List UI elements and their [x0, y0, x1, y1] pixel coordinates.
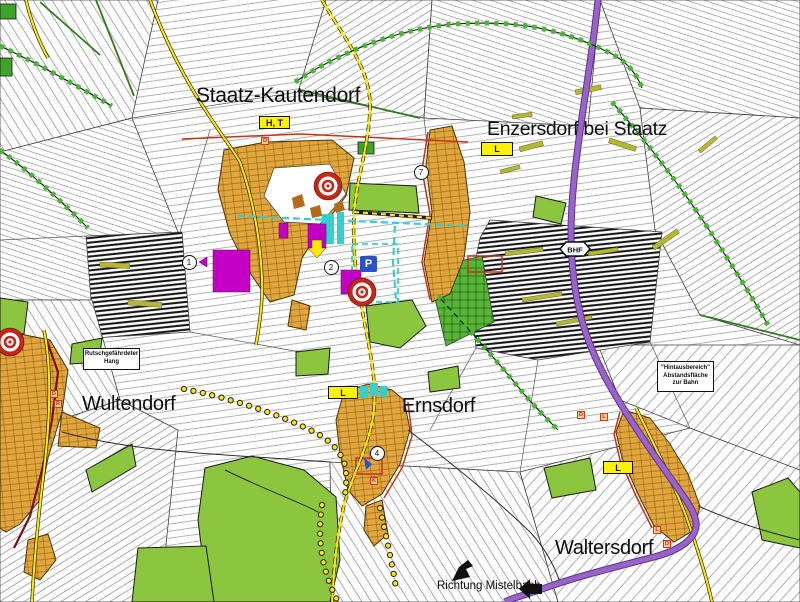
letter-marker: L	[600, 413, 608, 421]
annotation-landslide-line1: Rutschgefährdeter	[85, 351, 138, 359]
annotation-landslide: Rutschgefährdeter Hang	[83, 348, 140, 370]
map-canvas: BHF	[0, 0, 800, 602]
annotation-rail-buffer-line1: "Hintausbereich"	[661, 365, 710, 373]
annotation-rail-buffer-line3: zur Bahn	[673, 380, 699, 388]
place-label-staatz: Staatz-Kautendorf	[196, 84, 360, 108]
direction-note: Richtung Mistelbach	[437, 580, 541, 592]
annotation-landslide-line2: Hang	[104, 359, 119, 367]
zone-marker-l-ernsdorf: L	[328, 386, 358, 399]
zone-marker-l-enzersdorf: L	[481, 142, 513, 156]
letter-marker: R	[54, 400, 62, 408]
circle-marker: 7	[414, 165, 429, 180]
letter-marker: D	[577, 411, 585, 419]
letter-marker: L	[653, 526, 661, 534]
station-label: BHF	[567, 246, 583, 255]
circle-marker: 4	[370, 446, 385, 461]
circle-marker: 1	[182, 255, 197, 270]
annotation-rail-buffer-line2: Abstandsfläche	[663, 373, 708, 381]
letter-marker: D	[261, 137, 269, 145]
place-label-waltersdorf: Waltersdorf	[555, 537, 653, 560]
place-label-wultendorf: Wultendorf	[82, 393, 175, 416]
annotation-rail-buffer: "Hintausbereich" Abstandsfläche zur Bahn	[657, 361, 714, 392]
letter-marker: D	[663, 540, 671, 548]
station-badge: BHF	[560, 242, 590, 256]
parking-marker: P	[360, 256, 377, 272]
zoning-map: BHF Staatz-Kautendorf Enzersdorf bei Sta…	[0, 0, 800, 602]
letter-marker: D	[50, 390, 58, 398]
circle-marker: 2	[324, 260, 339, 275]
zone-marker-ht: H, T	[259, 116, 290, 129]
place-label-ernsdorf: Ernsdorf	[402, 395, 475, 418]
zone-marker-l-waltersdorf: L	[603, 461, 633, 474]
place-label-enzersdorf: Enzersdorf bei Staatz	[487, 118, 667, 141]
letter-marker: K	[370, 477, 378, 485]
